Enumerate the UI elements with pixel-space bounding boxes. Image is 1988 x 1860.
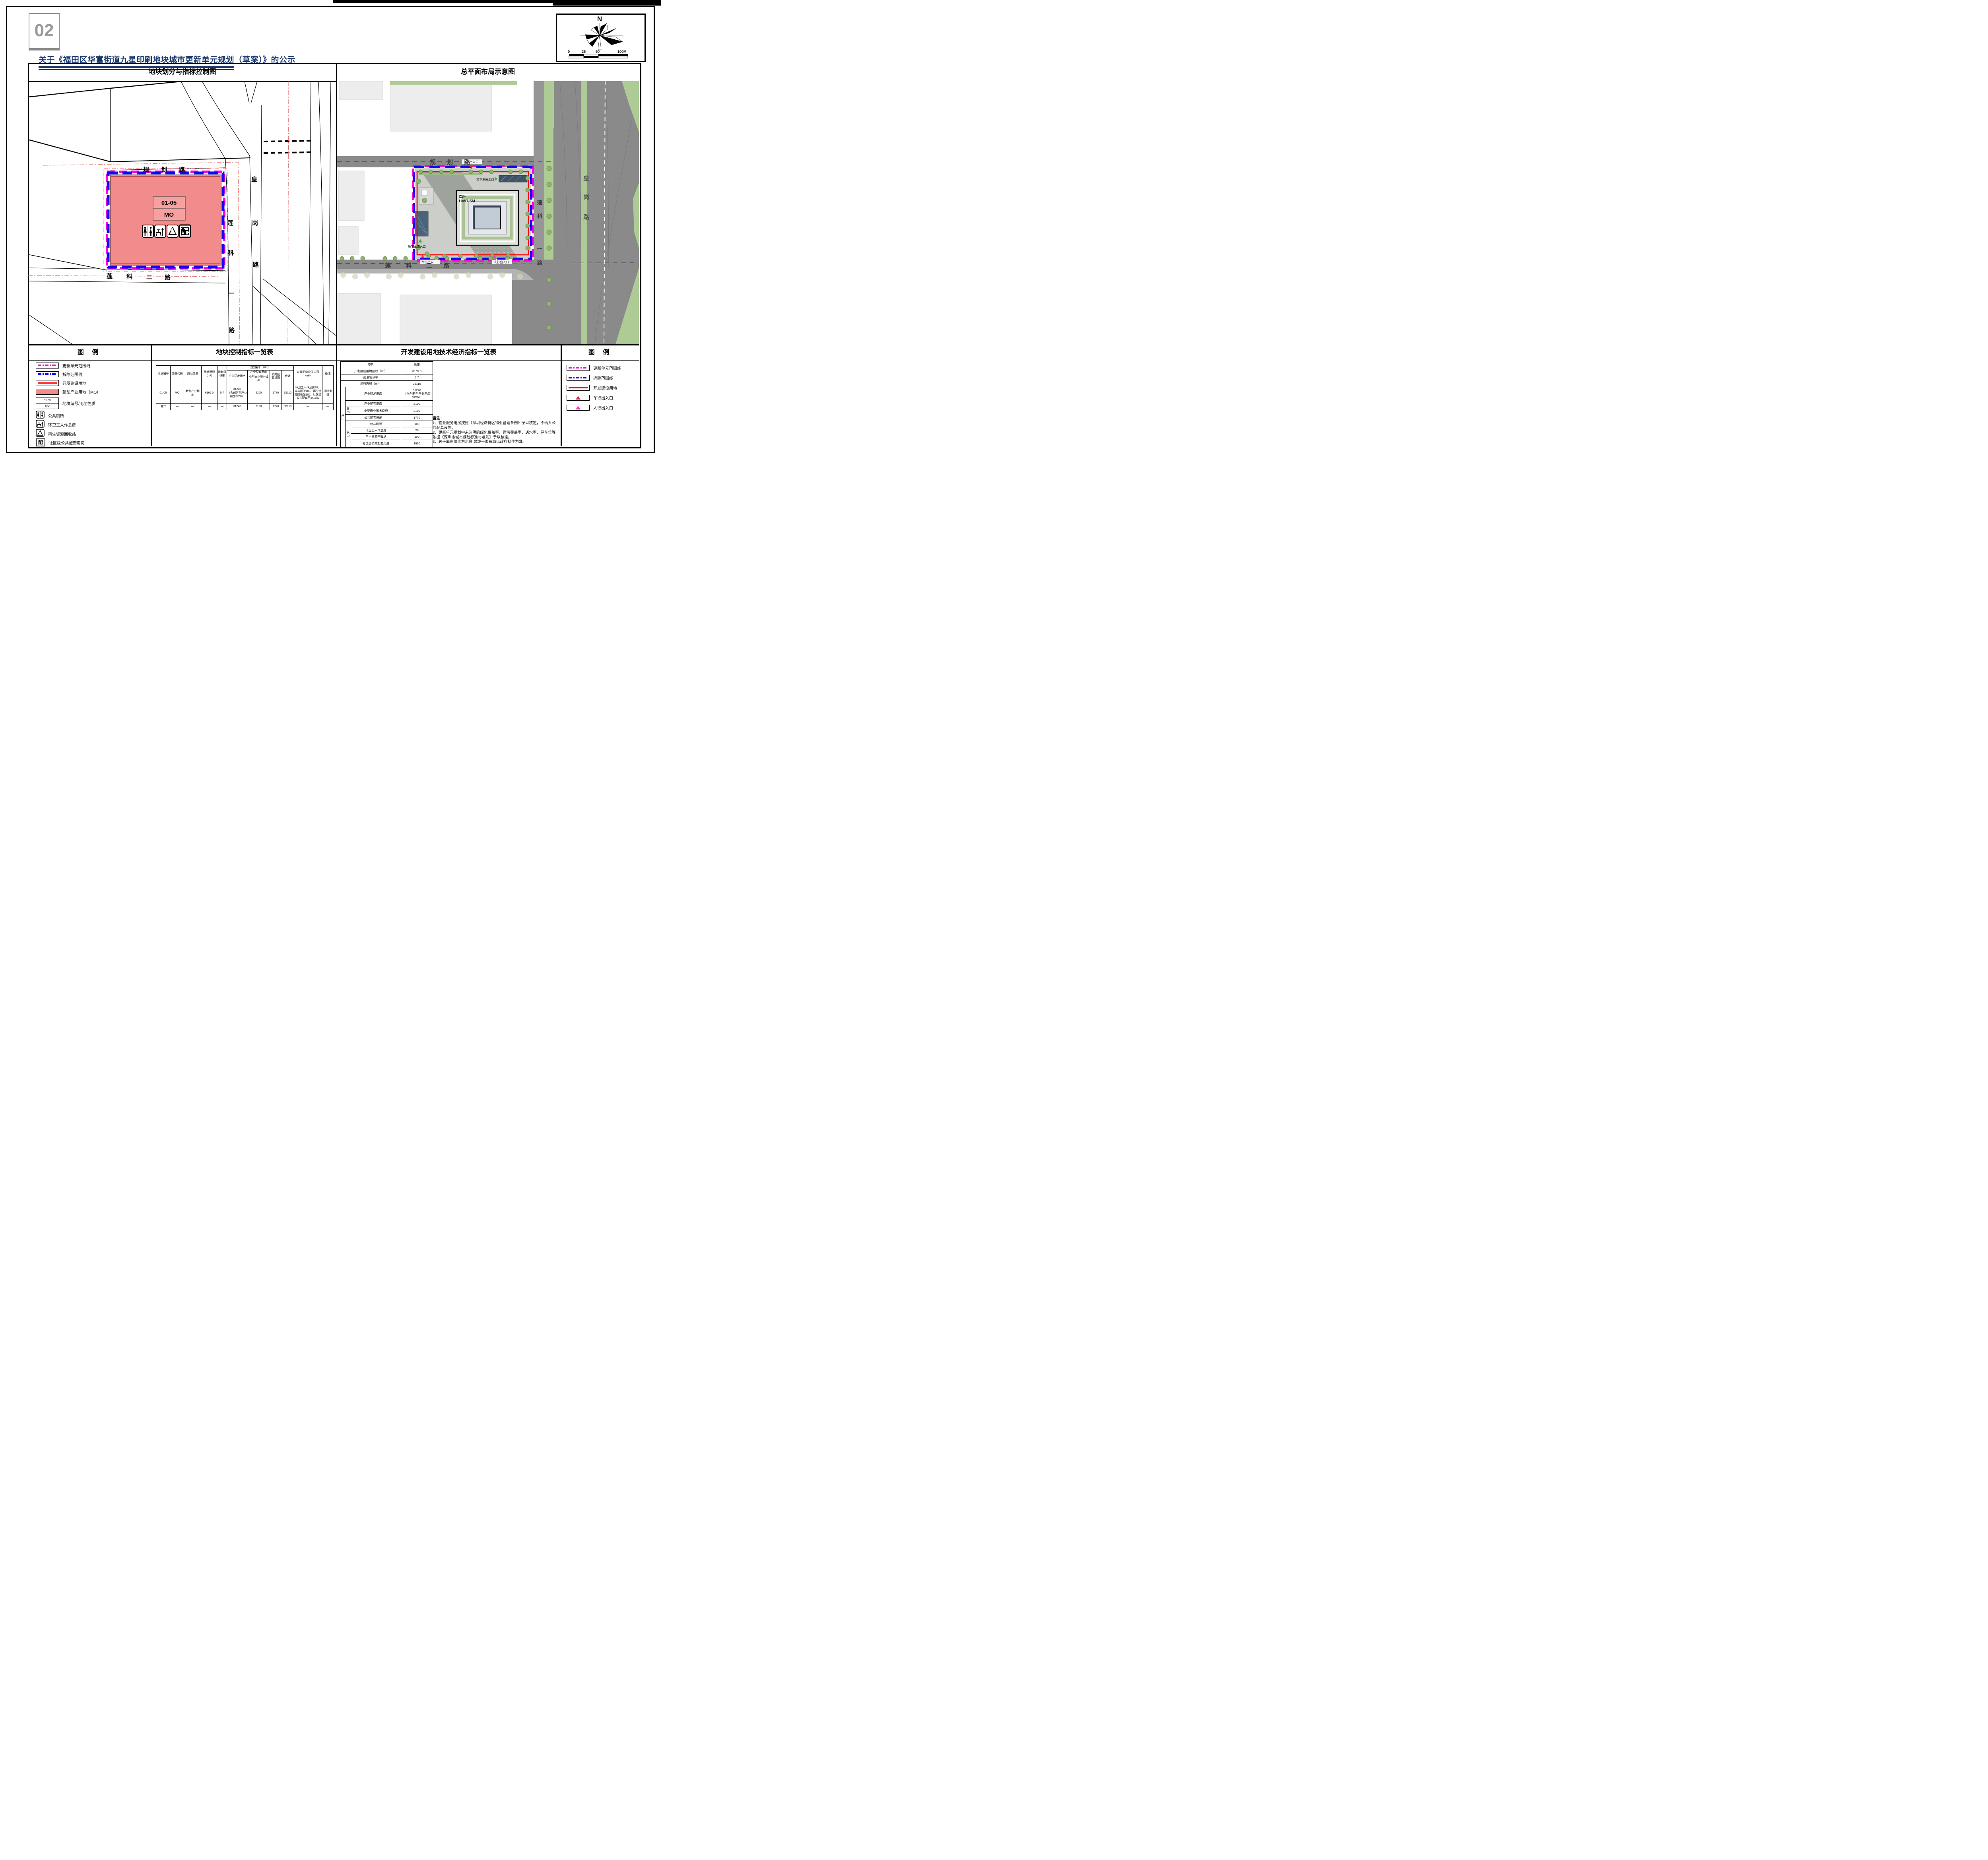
- cell: 规划容积（m²）: [341, 381, 401, 387]
- road-label-lianke2: 路: [165, 274, 171, 281]
- plot-control-table-panel: 地块控制指标一览表 地块编号 性质代码 用地性质 用地面积（m²） 规划容积率 …: [152, 345, 561, 446]
- right-map-title: 总平面布局示意图: [337, 63, 639, 81]
- total-cell: —: [294, 404, 322, 410]
- notes-block: 备注： 1、物业服务用房按照《深圳经济特区物业管理条例》予以核定，不纳入公共配套…: [433, 416, 559, 444]
- col-header: 地块编号: [156, 366, 171, 383]
- cell: 开发建设用地面积（m²）: [341, 368, 401, 374]
- col-header: 规划容积率: [217, 366, 227, 383]
- road-label-lianke2: 路: [443, 262, 450, 269]
- compass-rose: N 0 25 50 100M: [557, 15, 642, 58]
- cell: 6165.0: [401, 368, 433, 374]
- cell: 产业配套用房: [346, 401, 401, 407]
- recycle-station-icon: [36, 429, 45, 439]
- road-label-lianke2: 二: [426, 262, 432, 269]
- road-label-huanggang: 岗: [583, 194, 589, 201]
- road-label-lianke1: 莲: [227, 219, 233, 227]
- total-cell: 31240: [227, 404, 248, 410]
- legend-label: 开发建设用地: [593, 385, 617, 391]
- plot-control-table: 地块编号 性质代码 用地性质 用地面积（m²） 规划容积率 规划容积（m²） 公…: [156, 365, 333, 410]
- tick-25: 25: [582, 50, 586, 54]
- legend-plot-code: 01-05: [36, 398, 58, 403]
- legend-label: 拆除范围线: [62, 371, 82, 377]
- development-land-swatch: [36, 380, 59, 386]
- cell: 2100: [401, 407, 433, 415]
- garage-out-label: 地下车库出口: [476, 177, 494, 181]
- legend-item: 更新单元范围线: [36, 362, 90, 369]
- legend-item: 公共厕所: [36, 411, 64, 419]
- cell: 规划容积率: [341, 374, 401, 381]
- cell: 6165.0: [202, 383, 217, 404]
- legend-label: 人行出入口: [593, 405, 613, 411]
- compass-box: N 0 25 50 100M: [556, 14, 646, 62]
- road-label-huanggang: 皇: [251, 176, 257, 183]
- road-label-huanggang: 皇: [583, 175, 589, 182]
- plan-sheet: 02 关于《福田区华富街道九星印刷地块城市更新单元规划（草案）》的公示 N: [0, 0, 661, 465]
- road-label-lianke1: 路: [229, 327, 235, 334]
- legend-item: 人行出入口: [567, 404, 613, 411]
- top-right-scan-strip: [553, 0, 661, 6]
- legend-plot-use: MO: [36, 403, 58, 409]
- cell: 20: [401, 427, 433, 434]
- legend-label: 拆除范围线: [593, 375, 613, 381]
- col-header-group: 规划容积（m²）: [227, 366, 294, 370]
- col-header: 备注: [322, 366, 334, 383]
- cell: 31240 （含创新型产业用房3750）: [401, 387, 433, 401]
- cell: 产业研发用房: [346, 387, 401, 401]
- cell: 1770: [270, 383, 282, 404]
- road-label-lianke1: 科: [537, 213, 542, 219]
- road-label-huanggang: 路: [253, 261, 259, 268]
- col-header: 用地面积（m²）: [202, 366, 217, 383]
- legend-right-title: 图 例: [562, 345, 639, 361]
- toilet-icon: [36, 411, 45, 421]
- total-cell: 合计: [156, 404, 171, 410]
- road-label-lianke1: 路: [537, 260, 543, 266]
- legend-item: 配 社区级公共配套用房: [36, 439, 85, 446]
- road-label-lianke2: 科: [126, 273, 132, 280]
- qizhong-inner: 其中: [346, 421, 351, 447]
- legend-item: 拆除范围线: [36, 371, 82, 377]
- cell: 100: [401, 421, 433, 427]
- road-label-lianke2: 莲: [107, 273, 113, 280]
- col-header: 小型商业服务设施: [248, 375, 270, 383]
- road-label-lianke1: 科: [228, 249, 234, 256]
- note-line: 2、更新单元规划中未注明的绿化覆盖率、建筑覆盖率、透水率、停车位等依据《深圳市城…: [433, 431, 559, 440]
- cell: 1770: [401, 415, 433, 421]
- total-cell: 1770: [270, 404, 282, 410]
- road-label-guihua: 规 划 路: [143, 166, 190, 173]
- legend-right-panel: 图 例 更新单元范围线 拆除范围线 开发建设用地 车行出入口 人行出入口: [562, 345, 639, 446]
- total-cell: —: [322, 404, 334, 410]
- qizhong-outer: 其中: [341, 387, 346, 447]
- col-header: 性质代码: [171, 366, 184, 383]
- col-header: 用地性质: [184, 366, 202, 383]
- total-cell: —: [184, 404, 202, 410]
- cell: 31240 （含创新型产业用房3750）: [227, 383, 248, 404]
- cell: 35110: [401, 381, 433, 387]
- cell: 1550: [401, 440, 433, 447]
- note-line: 3、总平面图仅作为示意,最终平面布局以政府批件为准。: [433, 440, 559, 444]
- tick-50: 50: [596, 50, 600, 54]
- legend-label: 新型产业用地（MO）: [62, 389, 101, 395]
- cell: 2100: [401, 401, 433, 407]
- cell: MO: [171, 383, 184, 404]
- cell: 100: [401, 434, 433, 440]
- map-title-bar: 地块划分与指标控制图 总平面布局示意图: [28, 63, 639, 82]
- entrance-pedestrian-label: 人行出入口: [494, 260, 509, 264]
- legend-item: 开发建设用地: [36, 380, 86, 386]
- legend-label: 社区级公共配套用房: [49, 440, 85, 446]
- note-line: 1、物业服务用房按照《深圳经济特区物业管理条例》予以核定，不纳入公共配套设施。: [433, 421, 559, 431]
- road-label-lianke1: 莲: [537, 200, 542, 206]
- total-cell: —: [171, 404, 184, 410]
- cell: 环卫工人作息房20、公共厕所100、再生资源回收站100、社区级公共配套用房15…: [294, 383, 322, 404]
- cell: 5.7: [217, 383, 227, 404]
- building-floors: 21F: [459, 194, 466, 199]
- legend-item: 01-05 MO 地块编号/用地性质: [36, 397, 95, 409]
- wind-rose-petals: [585, 23, 623, 50]
- total-cell: 2100: [248, 404, 270, 410]
- legend-item: 环卫工人作息房: [36, 421, 76, 429]
- cell: 公共配套设施: [346, 415, 401, 421]
- col-header: 产业研发用房: [227, 370, 248, 383]
- development-land-swatch: [567, 385, 590, 391]
- legend-item: 开发建设用地: [567, 384, 617, 391]
- legend-label: 更新单元范围线: [593, 365, 621, 371]
- right-table-title: 开发建设用地技术经济指标一览表: [337, 345, 561, 361]
- col-header: 公共配套设施内容（m²）: [294, 366, 322, 383]
- road-label-lianke2: 莲: [385, 262, 391, 269]
- building-height: H=97.5M: [459, 199, 475, 204]
- demolish-line-swatch: [567, 375, 590, 381]
- cell: 环卫工人作息房: [351, 427, 401, 434]
- community-support-icon: 配: [179, 225, 190, 237]
- demolish-line-swatch: [36, 371, 59, 377]
- pedestrian-entrance-swatch: [567, 405, 590, 411]
- legend-item: 新型产业用地（MO）: [36, 388, 101, 395]
- recycle-station-icon: [167, 225, 178, 237]
- legend-label: 环卫工人作息房: [48, 422, 76, 428]
- tech-economic-table: 项目 数量 开发建设用地面积（m²）6165.0 规划容积率5.7 规划容积（m…: [340, 361, 433, 447]
- plot-code: 01-05: [161, 200, 177, 206]
- road-label-lianke1: 一: [228, 290, 234, 297]
- community-support-icon: 配: [36, 438, 45, 446]
- cell: 社区级公共配套用房: [351, 440, 401, 447]
- update-unit-line-swatch: [567, 365, 590, 371]
- mid-table-title: 地块控制指标一览表: [152, 345, 337, 361]
- col-header: 项目: [341, 362, 401, 368]
- page-number: 02: [29, 14, 59, 47]
- cell: 35110: [282, 383, 294, 404]
- cell: 新型产业用地: [184, 383, 202, 404]
- site-plan-map: 21F H=97.5M: [337, 81, 639, 344]
- road-label-lianke2: 二: [146, 274, 152, 281]
- col-header: 数量: [401, 362, 433, 368]
- plot-control-map: 01-05 MO: [28, 81, 336, 344]
- legend-left-title: 图 例: [28, 345, 151, 361]
- cell: 5.7: [401, 374, 433, 381]
- legend-label: 再生资源回收站: [48, 431, 76, 437]
- update-unit-line-swatch: [36, 363, 59, 369]
- pei-char: 配: [181, 227, 189, 237]
- legend-label: 车行出入口: [593, 395, 613, 401]
- legend-item: 再生资源回收站: [36, 430, 76, 438]
- legend-label: 公共厕所: [48, 413, 64, 419]
- col-header: 产业配套用房: [248, 370, 270, 375]
- sanitation-rest-room-icon: [155, 225, 166, 237]
- legend-left-panel: 图 例 更新单元范围线 拆除范围线 开发建设用地 新型产业用地（MO） 01-0…: [28, 345, 151, 446]
- qizhong-inner: 其中: [346, 407, 351, 415]
- scale-bar: 0 25 50 100M: [568, 50, 628, 58]
- sanitation-rest-room-icon: [36, 420, 45, 430]
- cell: 公共厕所: [351, 421, 401, 427]
- road-label-lianke1: 一: [537, 246, 542, 252]
- garage-in-label: 地下车库入口: [408, 244, 426, 248]
- road-label-lianke2: 科: [406, 262, 412, 269]
- left-map-title: 地块划分与指标控制图: [28, 63, 337, 81]
- north-green-strip: [390, 81, 517, 85]
- cell: 再生资源回收站: [351, 434, 401, 440]
- site-plot: 21F H=97.5M: [413, 166, 533, 260]
- north-label: N: [597, 15, 602, 23]
- cell: 2100: [248, 383, 270, 404]
- total-cell: —: [202, 404, 217, 410]
- notes-heading: 备注：: [433, 416, 559, 421]
- vehicle-entrance-swatch: [567, 395, 590, 401]
- total-cell: —: [217, 404, 227, 410]
- total-cell: 35110: [282, 404, 294, 410]
- col-header: 合计: [282, 370, 294, 383]
- legend-label: 开发建设用地: [62, 380, 86, 386]
- road-label-huanggang: 路: [583, 213, 590, 221]
- legend-label: 地块编号/用地性质: [62, 400, 95, 406]
- cell: 小型商业服务设施: [351, 407, 401, 415]
- road-label-huanggang: 岗: [252, 219, 258, 227]
- m0-land-swatch: [36, 389, 59, 395]
- tower: [456, 190, 518, 245]
- toilet-icon: [142, 225, 153, 237]
- legend-label: 更新单元范围线: [62, 363, 90, 369]
- col-header: 公共配套设施: [270, 370, 282, 383]
- page-number-box: 02: [29, 13, 60, 50]
- legend-item: 更新单元范围线: [567, 365, 621, 371]
- legend-item: 拆除范围线: [567, 374, 613, 381]
- cell: 拆除重建: [322, 383, 334, 404]
- m0-plot: 01-05 MO: [107, 172, 224, 268]
- plot-use: MO: [164, 211, 174, 218]
- road-label-guihua: 规 划 路: [430, 159, 475, 166]
- cell: 01-05: [156, 383, 171, 404]
- legend-item: 车行出入口: [567, 394, 613, 401]
- tick-0: 0: [568, 50, 570, 54]
- plot-code-swatch: 01-05 MO: [36, 398, 59, 409]
- pei-char: 配: [38, 440, 43, 445]
- tick-100: 100M: [617, 50, 627, 54]
- plot-code-box: 01-05 MO: [153, 196, 185, 220]
